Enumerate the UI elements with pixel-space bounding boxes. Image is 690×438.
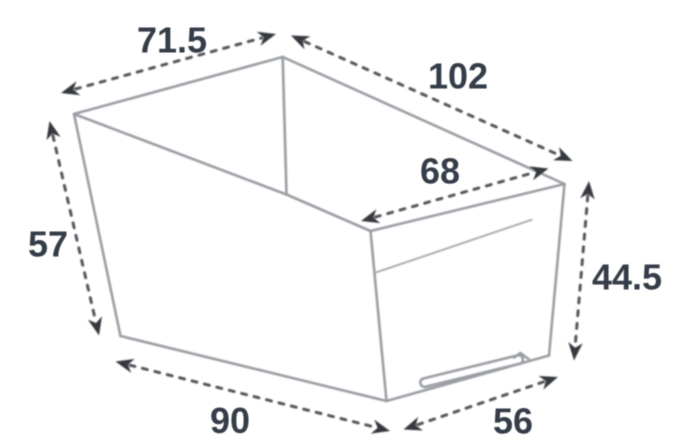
svg-text:56: 56 — [493, 401, 533, 438]
svg-text:90: 90 — [210, 400, 250, 438]
svg-text:57: 57 — [28, 224, 68, 265]
svg-text:102: 102 — [428, 56, 488, 97]
svg-text:44.5: 44.5 — [592, 257, 662, 298]
svg-text:68: 68 — [420, 151, 460, 192]
svg-text:71.5: 71.5 — [137, 20, 207, 61]
